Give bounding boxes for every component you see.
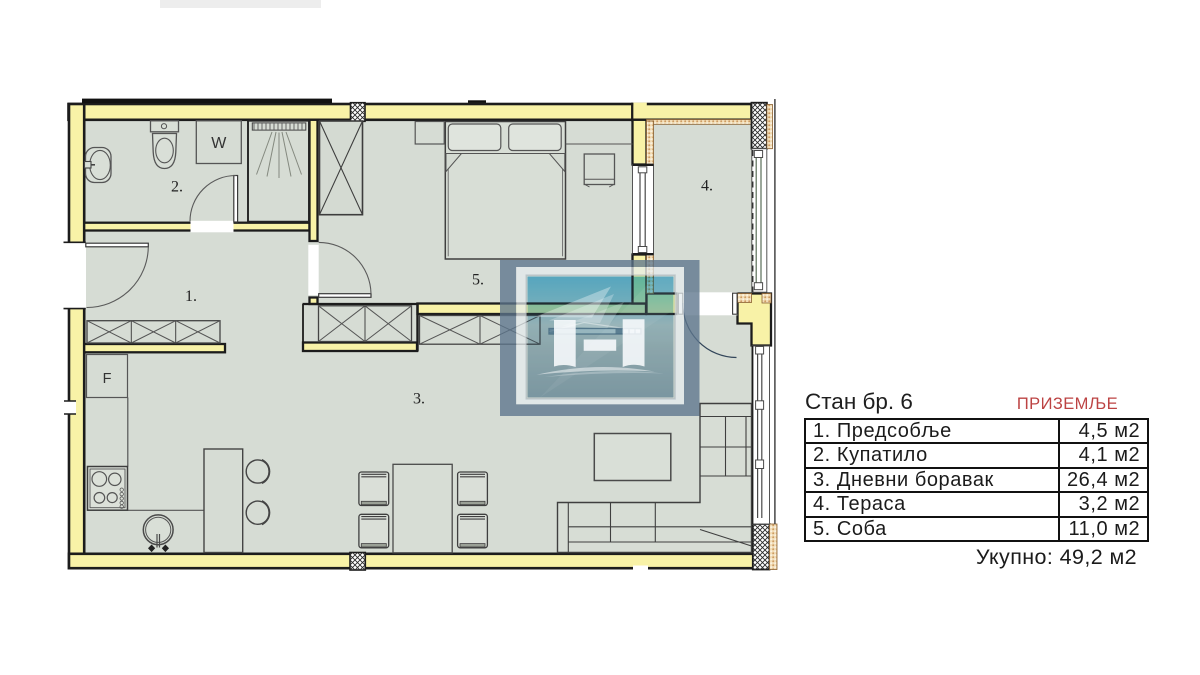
svg-text:W: W xyxy=(211,135,227,152)
svg-text:1.: 1. xyxy=(185,288,197,305)
svg-text:2.: 2. xyxy=(171,179,183,196)
svg-text:F: F xyxy=(103,371,112,387)
svg-text:3.: 3. xyxy=(413,391,425,408)
svg-text:5.: 5. xyxy=(472,272,484,289)
svg-text:4.: 4. xyxy=(701,178,713,195)
